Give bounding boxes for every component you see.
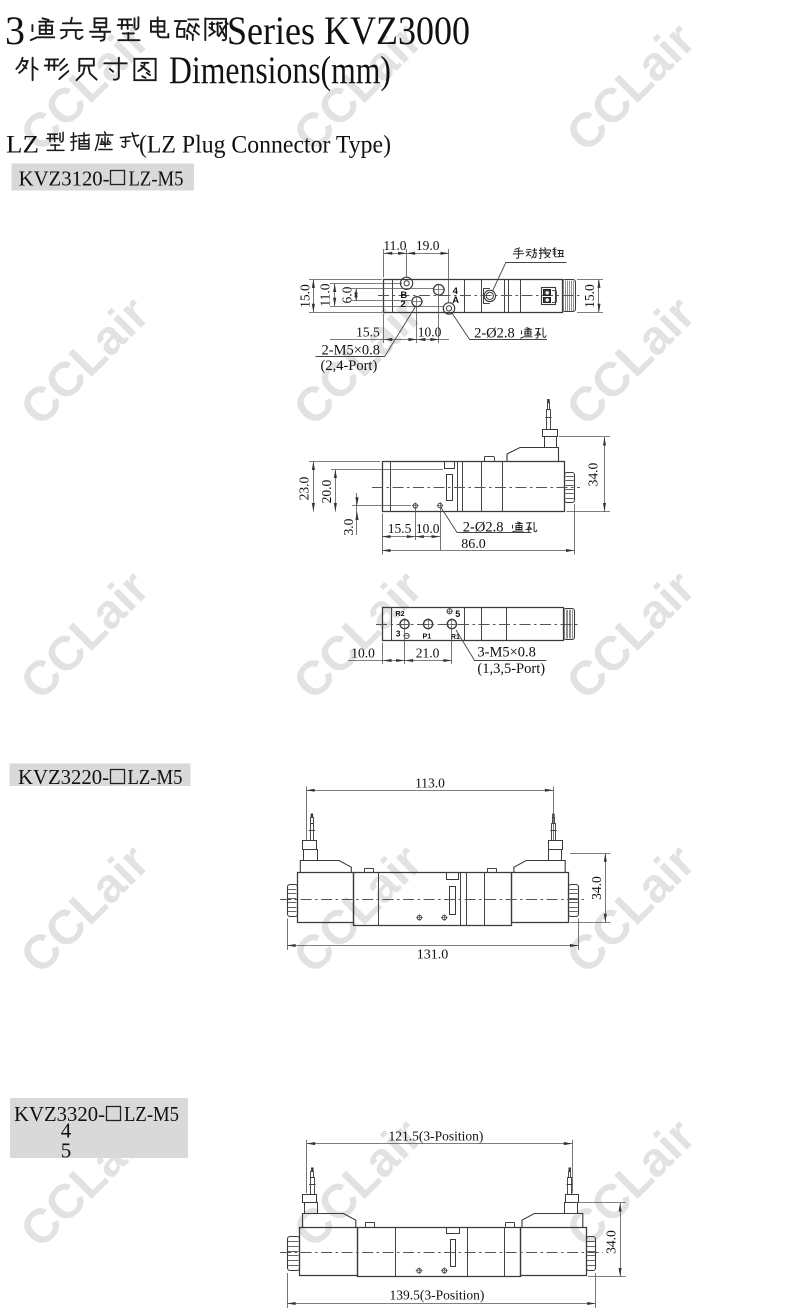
svg-text:15.5: 15.5 xyxy=(356,325,380,340)
svg-text:113.0: 113.0 xyxy=(415,775,445,790)
svg-text:3: 3 xyxy=(396,629,401,639)
svg-text:KVZ3320-: KVZ3320- xyxy=(14,1102,105,1126)
svg-text:CCLair: CCLair xyxy=(557,13,706,162)
svg-text:(LZ Plug Connector Type): (LZ Plug Connector Type) xyxy=(139,130,391,159)
svg-text:(1,3,5-Port): (1,3,5-Port) xyxy=(477,661,545,677)
svg-text:LZ-M5: LZ-M5 xyxy=(124,1102,179,1126)
svg-text:3-M5×0.8: 3-M5×0.8 xyxy=(477,645,536,661)
svg-text:21.0: 21.0 xyxy=(416,645,440,660)
svg-text:LZ-M5: LZ-M5 xyxy=(128,765,183,789)
svg-text:CCLair: CCLair xyxy=(557,1109,706,1258)
svg-text:2-Ø2.8: 2-Ø2.8 xyxy=(463,520,504,536)
svg-text:10.0: 10.0 xyxy=(418,325,442,340)
svg-text:CCLair: CCLair xyxy=(11,287,160,436)
svg-text:LZ-M5: LZ-M5 xyxy=(129,167,184,191)
svg-text:3: 3 xyxy=(5,8,25,53)
svg-text:CCLair: CCLair xyxy=(284,561,433,710)
svg-text:11.0: 11.0 xyxy=(383,238,406,253)
svg-text:15.5: 15.5 xyxy=(388,521,412,536)
svg-text:KVZ3120-: KVZ3120- xyxy=(19,167,110,191)
svg-text:CCLair: CCLair xyxy=(557,561,706,710)
svg-text:131.0: 131.0 xyxy=(417,947,449,962)
svg-text:(2,4-Port): (2,4-Port) xyxy=(321,358,378,374)
svg-text:20.0: 20.0 xyxy=(319,479,334,503)
svg-text:15.0: 15.0 xyxy=(582,284,597,308)
svg-text:121.5(3-Position): 121.5(3-Position) xyxy=(389,1129,484,1144)
svg-text:2: 2 xyxy=(400,299,405,310)
svg-text:34.0: 34.0 xyxy=(589,876,604,900)
svg-text:34.0: 34.0 xyxy=(586,462,601,486)
svg-text:R2: R2 xyxy=(395,609,404,618)
svg-text:CCLair: CCLair xyxy=(11,835,160,984)
svg-text:KVZ3220-: KVZ3220- xyxy=(18,765,109,789)
svg-text:P1: P1 xyxy=(423,631,432,640)
svg-text:10.0: 10.0 xyxy=(351,645,375,660)
svg-text:139.5(3-Position): 139.5(3-Position) xyxy=(390,1288,485,1303)
svg-text:86.0: 86.0 xyxy=(461,537,486,552)
svg-text:CCLair: CCLair xyxy=(557,287,706,436)
svg-text:5: 5 xyxy=(61,1139,72,1163)
svg-text:11.0: 11.0 xyxy=(317,283,332,306)
svg-text:Dimensions(mm): Dimensions(mm) xyxy=(169,49,391,92)
svg-text:CCLair: CCLair xyxy=(284,835,433,984)
svg-text:CCLair: CCLair xyxy=(11,561,160,710)
svg-text:23.0: 23.0 xyxy=(297,476,312,500)
svg-text:6.0: 6.0 xyxy=(340,286,355,303)
svg-text:5: 5 xyxy=(455,609,460,619)
svg-text:34.0: 34.0 xyxy=(604,1230,619,1254)
svg-text:10.0: 10.0 xyxy=(416,521,440,536)
svg-text:19.0: 19.0 xyxy=(416,238,440,253)
svg-text:LZ: LZ xyxy=(6,130,39,159)
svg-text:Series KVZ3000: Series KVZ3000 xyxy=(227,8,470,53)
svg-text:15.0: 15.0 xyxy=(298,284,313,308)
svg-text:R1: R1 xyxy=(451,632,460,641)
svg-text:3.0: 3.0 xyxy=(341,518,356,535)
svg-text:A: A xyxy=(452,295,459,306)
